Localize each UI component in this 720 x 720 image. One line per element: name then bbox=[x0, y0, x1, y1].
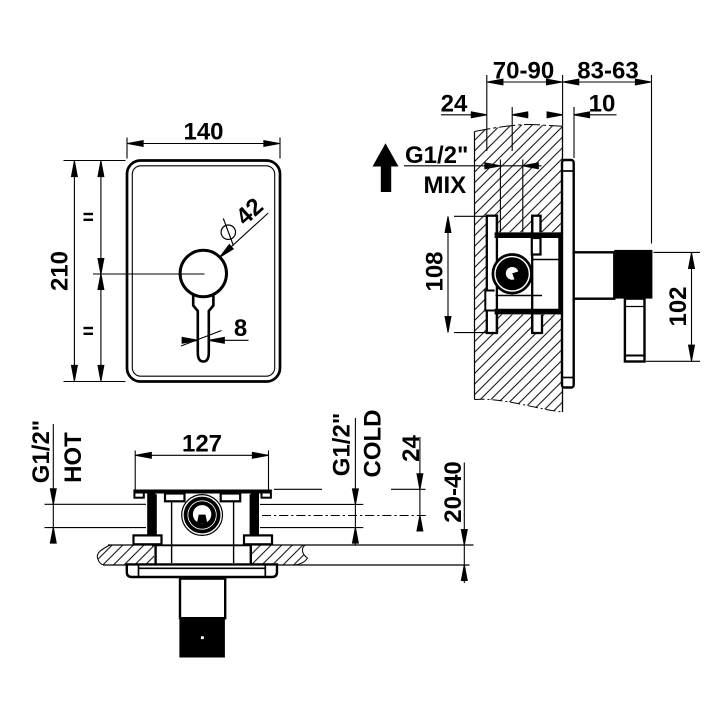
svg-text:24: 24 bbox=[441, 91, 468, 118]
svg-text:MIX: MIX bbox=[424, 172, 467, 199]
svg-text:83-63: 83-63 bbox=[577, 58, 638, 85]
svg-text:G1/2": G1/2" bbox=[328, 413, 355, 476]
svg-text:COLD: COLD bbox=[359, 410, 386, 478]
svg-text:G1/2": G1/2" bbox=[405, 142, 468, 169]
svg-text:210: 210 bbox=[47, 251, 74, 291]
svg-text:140: 140 bbox=[183, 119, 223, 146]
svg-text:70-90: 70-90 bbox=[493, 58, 554, 85]
svg-text:8: 8 bbox=[234, 315, 247, 342]
svg-text:HOT: HOT bbox=[60, 432, 87, 483]
svg-text:127: 127 bbox=[182, 431, 222, 458]
svg-text:108: 108 bbox=[421, 251, 448, 291]
svg-text:20-40: 20-40 bbox=[440, 461, 467, 522]
svg-text:102: 102 bbox=[665, 286, 692, 326]
svg-text:10: 10 bbox=[589, 91, 616, 118]
svg-text:24: 24 bbox=[398, 435, 425, 462]
svg-text:G1/2": G1/2" bbox=[28, 420, 55, 483]
